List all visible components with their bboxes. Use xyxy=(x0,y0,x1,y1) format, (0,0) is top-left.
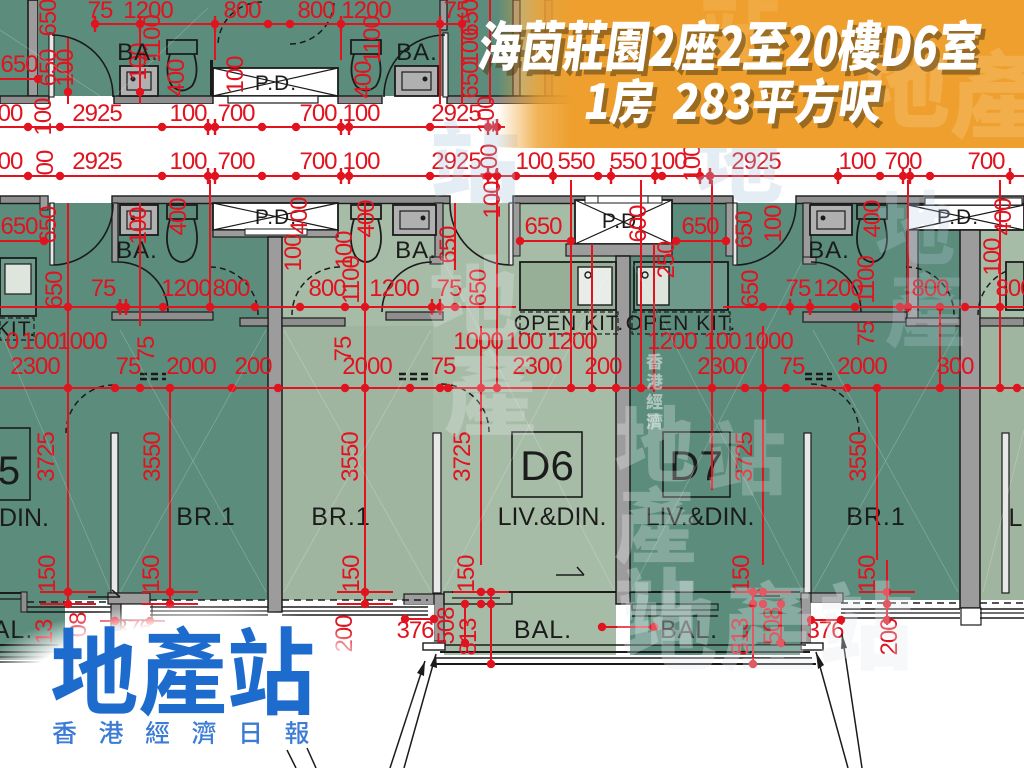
svg-text:LIV.&DIN.: LIV.&DIN. xyxy=(498,503,607,531)
svg-text:600: 600 xyxy=(625,205,652,243)
svg-text:100: 100 xyxy=(169,148,207,175)
svg-text:5: 5 xyxy=(0,449,20,493)
svg-text:100: 100 xyxy=(222,56,249,94)
svg-text:200: 200 xyxy=(584,353,622,380)
svg-text:00: 00 xyxy=(32,150,59,175)
svg-text:100: 100 xyxy=(331,231,358,269)
svg-text:BA.: BA. xyxy=(808,237,850,264)
svg-text:BA.: BA. xyxy=(395,237,437,264)
svg-text:1000: 1000 xyxy=(743,328,793,355)
svg-text:700: 700 xyxy=(299,100,337,127)
svg-text:1200: 1200 xyxy=(813,275,863,302)
svg-text:400: 400 xyxy=(286,197,313,235)
svg-text:100: 100 xyxy=(703,328,741,355)
svg-text:650: 650 xyxy=(731,211,758,249)
svg-text:700: 700 xyxy=(299,148,337,175)
svg-text:BAL.: BAL. xyxy=(514,616,572,644)
svg-text:1200: 1200 xyxy=(161,275,211,302)
svg-text:75: 75 xyxy=(780,353,805,380)
svg-text:150: 150 xyxy=(34,555,61,593)
svg-text:650: 650 xyxy=(737,270,764,308)
svg-text:100: 100 xyxy=(979,238,1006,276)
svg-text:400: 400 xyxy=(350,61,377,99)
svg-text:100: 100 xyxy=(760,205,787,243)
svg-text:2000: 2000 xyxy=(837,353,887,380)
svg-text:P.D.: P.D. xyxy=(255,72,297,95)
svg-text:V.&DIN.: V.&DIN. xyxy=(0,504,49,532)
svg-text:3725: 3725 xyxy=(449,432,476,482)
svg-text:3550: 3550 xyxy=(139,432,166,482)
svg-text:0: 0 xyxy=(6,328,19,355)
svg-text:150: 150 xyxy=(138,555,165,593)
svg-text:1200: 1200 xyxy=(647,328,697,355)
svg-text:2925: 2925 xyxy=(72,148,122,175)
svg-text:650: 650 xyxy=(681,213,719,240)
svg-text:2925: 2925 xyxy=(72,100,122,127)
svg-text:650: 650 xyxy=(35,206,62,244)
svg-text:1000: 1000 xyxy=(57,328,107,355)
svg-text:1100: 1100 xyxy=(359,16,386,64)
svg-text:75: 75 xyxy=(116,353,141,380)
svg-text:100: 100 xyxy=(52,49,79,87)
svg-text:800: 800 xyxy=(308,275,346,302)
svg-text:650: 650 xyxy=(0,51,38,78)
svg-text:75: 75 xyxy=(786,275,811,302)
svg-text:1200: 1200 xyxy=(369,275,419,302)
svg-text:150: 150 xyxy=(453,555,480,593)
svg-text:650: 650 xyxy=(35,0,62,37)
svg-text:700: 700 xyxy=(217,100,255,127)
svg-text:100: 100 xyxy=(515,148,553,175)
svg-text:00: 00 xyxy=(0,148,23,175)
svg-text:550: 550 xyxy=(557,148,595,175)
svg-text:813: 813 xyxy=(455,618,482,656)
svg-text:100: 100 xyxy=(838,148,876,175)
svg-text:75: 75 xyxy=(853,321,880,346)
svg-text:100: 100 xyxy=(169,100,207,127)
svg-text:650: 650 xyxy=(41,271,68,309)
svg-text:800: 800 xyxy=(223,0,261,24)
svg-text:100: 100 xyxy=(125,207,152,245)
svg-text:550: 550 xyxy=(609,148,647,175)
svg-text:100: 100 xyxy=(21,328,59,355)
svg-text:2000: 2000 xyxy=(342,353,392,380)
svg-text:L: L xyxy=(1009,504,1024,532)
svg-text:150: 150 xyxy=(338,555,365,593)
svg-text:1200: 1200 xyxy=(547,328,597,355)
svg-text:650: 650 xyxy=(524,213,562,240)
svg-text:BR.1: BR.1 xyxy=(176,503,236,531)
svg-text:BA.: BA. xyxy=(117,39,159,66)
svg-text:150: 150 xyxy=(728,555,755,593)
svg-text:800: 800 xyxy=(297,0,335,24)
svg-text:400: 400 xyxy=(165,198,192,236)
svg-text:3550: 3550 xyxy=(845,432,872,482)
svg-text:100: 100 xyxy=(280,234,307,272)
svg-text:800: 800 xyxy=(212,275,250,302)
svg-text:300: 300 xyxy=(936,353,974,380)
svg-text:BA.: BA. xyxy=(396,39,438,66)
svg-text:800: 800 xyxy=(995,275,1024,302)
svg-text:75: 75 xyxy=(88,0,113,24)
svg-text:700: 700 xyxy=(967,148,1005,175)
svg-text:650: 650 xyxy=(0,213,38,240)
svg-text:2300: 2300 xyxy=(10,353,60,380)
svg-text:2000: 2000 xyxy=(166,353,216,380)
svg-text:D6: D6 xyxy=(520,442,574,489)
svg-text:00: 00 xyxy=(0,100,23,127)
svg-text:75: 75 xyxy=(431,353,456,380)
svg-text:100: 100 xyxy=(30,98,57,136)
svg-text:2300: 2300 xyxy=(697,353,747,380)
svg-text:400: 400 xyxy=(990,198,1017,236)
svg-text:700: 700 xyxy=(217,148,255,175)
svg-text:250: 250 xyxy=(653,241,680,279)
svg-text:400: 400 xyxy=(163,59,190,97)
svg-text:75: 75 xyxy=(91,275,116,302)
